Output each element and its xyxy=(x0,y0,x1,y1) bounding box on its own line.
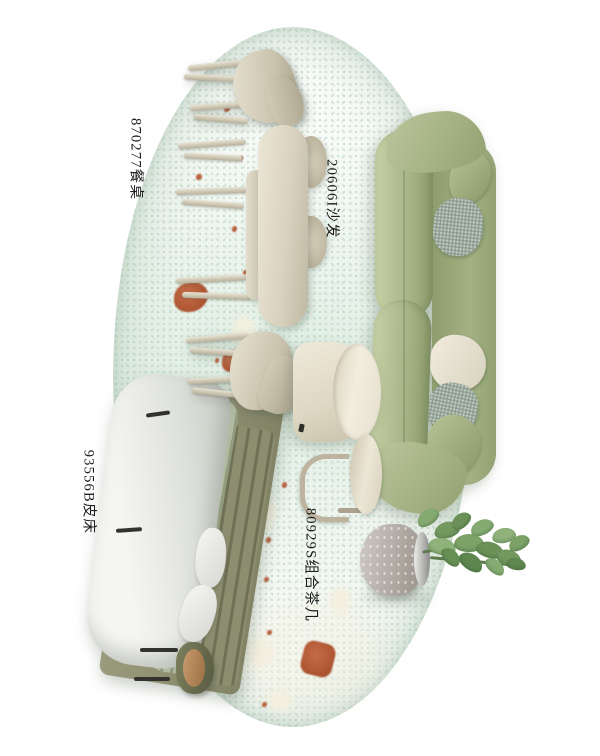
stool-leg xyxy=(140,648,178,652)
stool-wood-accent xyxy=(183,649,205,687)
plant-leaf xyxy=(505,556,527,571)
sofa-seam xyxy=(403,140,405,480)
coffee-table-drum xyxy=(291,340,386,446)
bed-stool xyxy=(176,642,214,694)
label-coffee-table: 80929S组合茶几 xyxy=(302,508,323,622)
drum-face xyxy=(333,344,381,440)
potted-plant xyxy=(358,490,533,615)
chair-leg xyxy=(194,114,248,125)
label-sofa: 20606I沙发 xyxy=(323,159,344,239)
furniture-collage: 870277餐桌 20606I沙发 93556B皮床 80929S组合茶几 xyxy=(0,0,600,756)
dining-table xyxy=(258,125,308,327)
plant-pot-rim xyxy=(414,532,430,586)
label-bed: 93556B皮床 xyxy=(80,450,101,535)
stool-leg xyxy=(134,677,170,681)
dining-chair-top xyxy=(182,48,312,133)
label-dining-table: 870277餐桌 xyxy=(127,118,148,200)
